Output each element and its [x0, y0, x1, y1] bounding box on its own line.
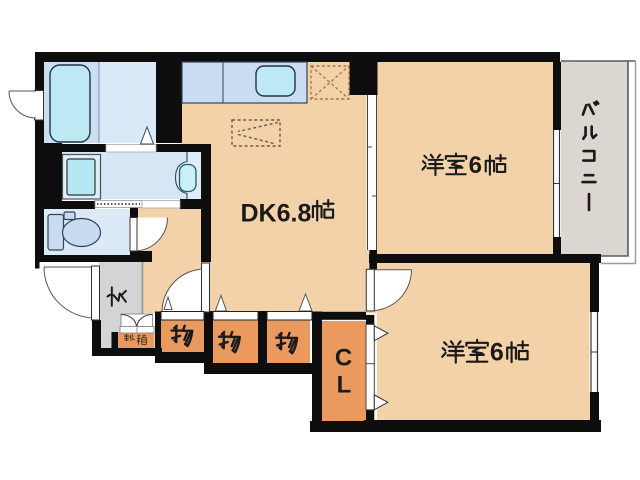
svg-text:L: L: [337, 372, 352, 399]
svg-text:6: 6: [469, 152, 482, 179]
svg-text:C: C: [335, 345, 352, 372]
svg-text:6: 6: [490, 338, 504, 366]
svg-text:DK6.8: DK6.8: [241, 200, 312, 228]
